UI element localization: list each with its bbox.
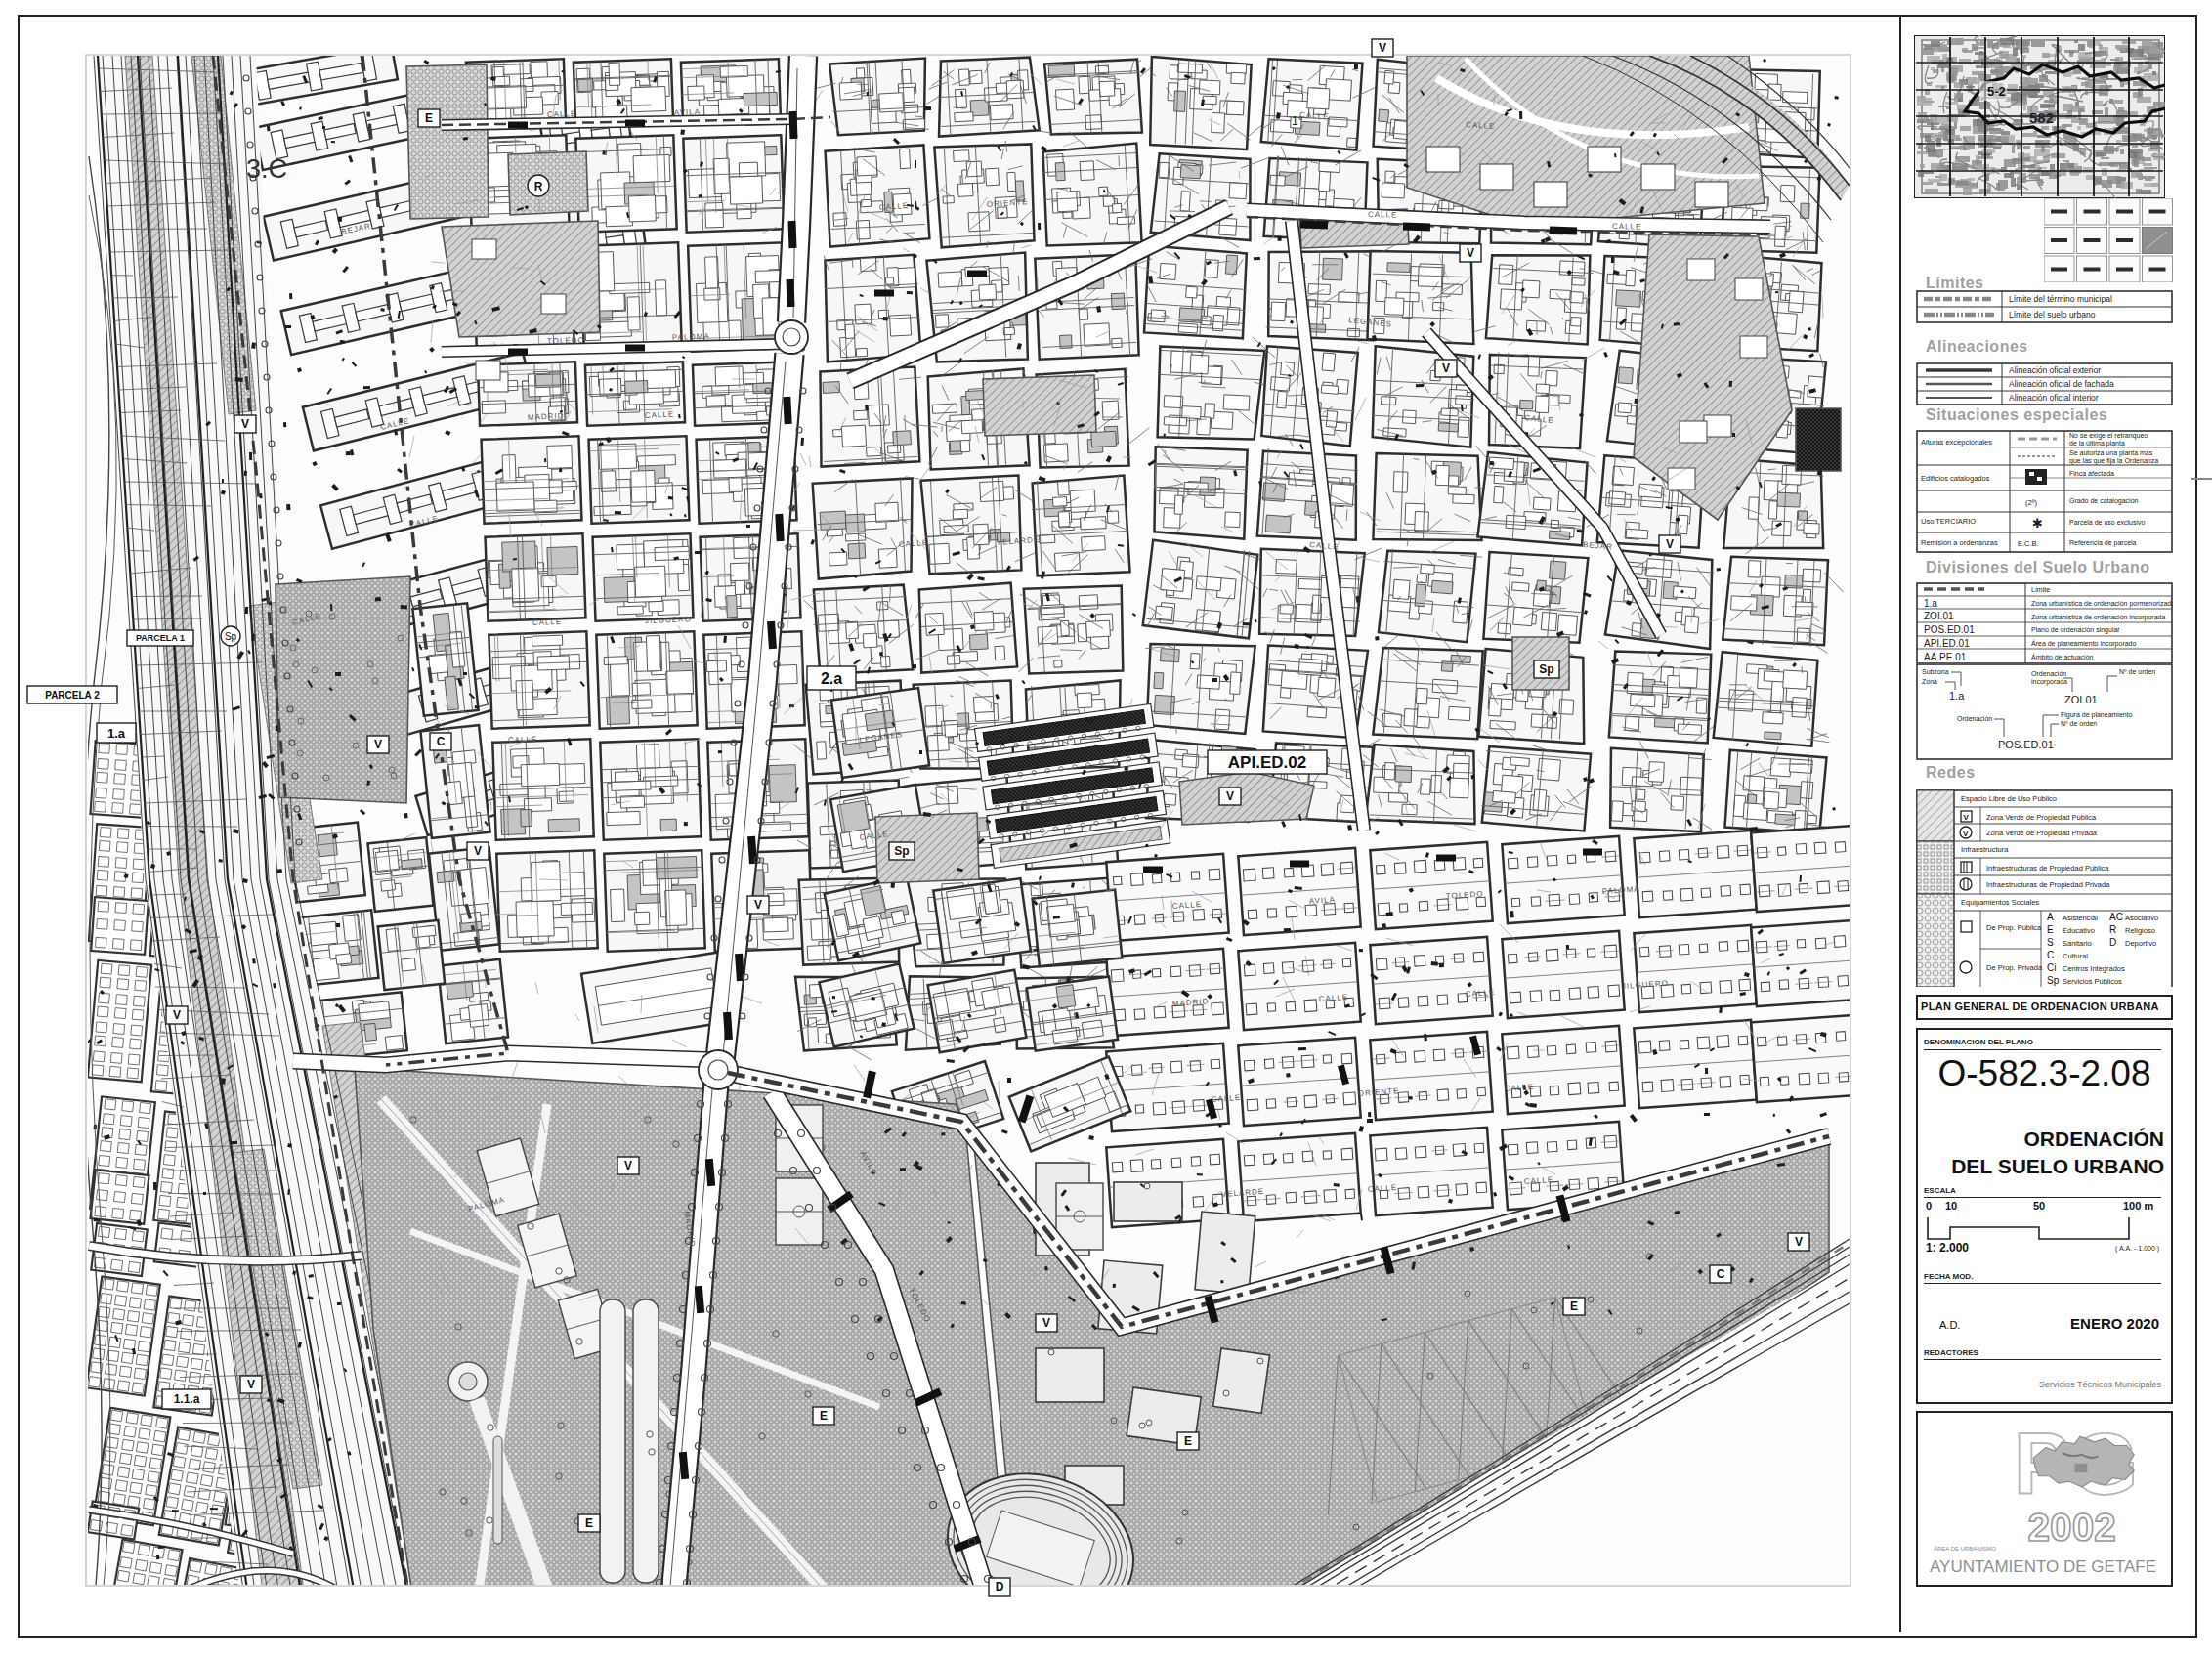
svg-text:POS.ED.01: POS.ED.01 <box>1924 624 1975 635</box>
svg-text:Educativo: Educativo <box>2063 926 2095 935</box>
svg-text:E: E <box>425 111 433 125</box>
svg-text:V: V <box>1226 789 1234 803</box>
svg-text:Ci: Ci <box>2047 962 2056 973</box>
svg-text:Referencia de parcela: Referencia de parcela <box>2069 539 2137 547</box>
svg-text:1.a: 1.a <box>1924 598 1937 609</box>
svg-text:C: C <box>1717 1267 1725 1281</box>
svg-text:V: V <box>1379 41 1386 55</box>
svg-text:De Prop. Privada: De Prop. Privada <box>1986 963 2043 972</box>
svg-text:Cultural: Cultural <box>2063 952 2088 960</box>
svg-text:E: E <box>2047 924 2054 935</box>
svg-text:V: V <box>1795 1235 1803 1249</box>
svg-text:100 m: 100 m <box>2123 1200 2153 1212</box>
svg-text:1.1.a: 1.1.a <box>174 1392 200 1406</box>
svg-text:Límite del suelo urbano: Límite del suelo urbano <box>2009 310 2096 319</box>
svg-text:V: V <box>1964 813 1970 822</box>
svg-text:Límite: Límite <box>2031 586 2050 593</box>
svg-text:( A.A. - 1.000 ): ( A.A. - 1.000 ) <box>2115 1245 2159 1253</box>
svg-text:V: V <box>374 738 382 751</box>
svg-text:V: V <box>1467 246 1474 260</box>
svg-text:V: V <box>1963 830 1969 838</box>
svg-text:ZOI.01: ZOI.01 <box>2064 694 2098 705</box>
svg-text:Se autoriza una planta más: Se autoriza una planta más <box>2069 449 2153 457</box>
svg-text:TOLEDO: TOLEDO <box>547 336 585 346</box>
svg-text:Zona urbanística de ordenación: Zona urbanística de ordenación incorpora… <box>2031 614 2165 621</box>
svg-text:CALLE: CALLE <box>532 618 563 627</box>
svg-text:E.C.B.: E.C.B. <box>2018 539 2039 548</box>
svg-text:Infraestructura: Infraestructura <box>1961 845 2009 854</box>
svg-text:1.a: 1.a <box>107 726 126 741</box>
svg-text:Finca afectada: Finca afectada <box>2069 470 2114 477</box>
svg-text:Ámbito de actuación: Ámbito de actuación <box>2031 653 2094 660</box>
svg-text:Deportivo: Deportivo <box>2125 939 2156 948</box>
svg-text:D: D <box>996 1580 1004 1594</box>
svg-text:POS.ED.01: POS.ED.01 <box>1998 739 2054 750</box>
svg-text:10: 10 <box>1945 1200 1957 1212</box>
svg-text:C: C <box>437 735 446 748</box>
svg-text:Sp: Sp <box>1539 662 1553 676</box>
svg-text:V: V <box>241 417 249 431</box>
svg-text:AC: AC <box>2109 912 2123 922</box>
svg-text:Edificios catalogados: Edificios catalogados <box>1921 474 1990 483</box>
svg-text:de la última planta: de la última planta <box>2069 440 2125 447</box>
svg-text:V: V <box>1666 537 1674 551</box>
svg-text:Infraestructuras de Propiedad: Infraestructuras de Propiedad Privada <box>1986 880 2110 889</box>
svg-text:Zona Verde de Propiedad Públic: Zona Verde de Propiedad Pública <box>1986 813 2097 822</box>
svg-text:Religioso: Religioso <box>2125 926 2155 935</box>
svg-text:Sp: Sp <box>894 844 909 858</box>
svg-text:Grado de catalogación: Grado de catalogación <box>2069 497 2139 505</box>
svg-text:Figura de planeamiento: Figura de planeamiento <box>2061 711 2133 719</box>
svg-text:C: C <box>2047 950 2054 960</box>
svg-text:No se exige el retranqueo: No se exige el retranqueo <box>2069 432 2148 440</box>
svg-text:Alineación oficial exterior: Alineación oficial exterior <box>2009 365 2101 375</box>
svg-text:Uso TERCIARIO: Uso TERCIARIO <box>1921 517 1976 526</box>
svg-text:R: R <box>534 180 543 193</box>
svg-text:CALLE: CALLE <box>645 409 675 420</box>
svg-text:Sp: Sp <box>225 631 237 642</box>
svg-text:CALLE: CALLE <box>1612 222 1642 232</box>
svg-text:Asociativo: Asociativo <box>2125 914 2158 922</box>
svg-text:PARCELA 1: PARCELA 1 <box>136 633 185 643</box>
svg-text:JILGUERO: JILGUERO <box>645 615 692 625</box>
svg-text:2002: 2002 <box>2028 1505 2116 1550</box>
svg-text:CALLE: CALLE <box>508 735 538 745</box>
svg-text:Espacio Libre de Uso Público: Espacio Libre de Uso Público <box>1961 794 2057 803</box>
svg-text:E: E <box>1570 1299 1578 1313</box>
svg-text:Infraestructuras de Propiedad: Infraestructuras de Propiedad Pública <box>1986 864 2109 873</box>
svg-text:E: E <box>1184 1434 1192 1448</box>
svg-text:✱: ✱ <box>2032 516 2043 531</box>
svg-text:que las que fija la Ordenanza: que las que fija la Ordenanza <box>2069 457 2158 465</box>
svg-text:V: V <box>1042 1316 1050 1330</box>
svg-text:Alineación oficial de fachada: Alineación oficial de fachada <box>2009 379 2114 389</box>
svg-text:582: 582 <box>2029 109 2054 126</box>
svg-text:D: D <box>2109 937 2116 948</box>
svg-text:V: V <box>624 1159 632 1172</box>
svg-text:CALLE: CALLE <box>547 109 577 119</box>
svg-text:Remisión a ordenanzas: Remisión a ordenanzas <box>1921 538 1998 547</box>
svg-text:2.a: 2.a <box>821 670 842 687</box>
svg-text:E: E <box>820 1409 828 1423</box>
svg-text:Sanitario: Sanitario <box>2063 939 2092 948</box>
svg-text:Sp: Sp <box>2047 975 2060 986</box>
svg-text:1: 2.000: 1: 2.000 <box>1926 1241 1969 1253</box>
svg-text:Centros Integrados: Centros Integrados <box>2063 964 2125 973</box>
svg-text:API.ED.01: API.ED.01 <box>1924 638 1970 649</box>
svg-text:Plano de ordenación singular: Plano de ordenación singular <box>2031 626 2120 634</box>
svg-text:V: V <box>474 844 482 858</box>
svg-text:3.C: 3.C <box>246 154 287 184</box>
svg-text:Zona urbanística de ordenación: Zona urbanística de ordenación pormenori… <box>2031 600 2173 608</box>
svg-text:(2º): (2º) <box>2025 498 2037 507</box>
svg-text:Zona: Zona <box>1922 678 1937 685</box>
svg-text:V: V <box>754 898 762 912</box>
svg-text:S: S <box>2047 937 2054 948</box>
svg-text:50: 50 <box>2033 1200 2045 1212</box>
svg-text:PALOMA: PALOMA <box>672 332 710 342</box>
svg-text:PARCELA 2: PARCELA 2 <box>45 690 100 701</box>
svg-text:Alturas excepcionales: Alturas excepcionales <box>1921 438 1992 447</box>
svg-text:Asistencial: Asistencial <box>2063 914 2098 922</box>
svg-text:1.a: 1.a <box>1949 690 1965 702</box>
svg-text:Nº de orden: Nº de orden <box>2061 720 2097 727</box>
svg-text:E: E <box>585 1516 593 1530</box>
svg-text:incorporada: incorporada <box>2031 678 2067 686</box>
svg-text:AVILA: AVILA <box>1309 895 1337 906</box>
svg-text:De Prop. Pública: De Prop. Pública <box>1986 923 2042 932</box>
svg-text:5-2: 5-2 <box>1987 84 2006 99</box>
svg-text:API.ED.02: API.ED.02 <box>1228 753 1306 772</box>
svg-text:AVILA: AVILA <box>674 107 701 117</box>
svg-text:0: 0 <box>1926 1200 1932 1212</box>
svg-text:A: A <box>2047 912 2054 922</box>
svg-text:CALLE: CALLE <box>1368 210 1398 220</box>
svg-text:Área de planeamiento incorpora: Área de planeamiento incorporado <box>2031 639 2137 648</box>
svg-text:Ordenación: Ordenación <box>1957 715 1992 722</box>
svg-text:Nº de orden: Nº de orden <box>2119 668 2155 675</box>
svg-text:Equipamientos Sociales: Equipamientos Sociales <box>1961 898 2039 907</box>
svg-text:Parcela de uso exclusivo: Parcela de uso exclusivo <box>2069 519 2146 526</box>
svg-text:AA.PE.01: AA.PE.01 <box>1924 652 1967 662</box>
svg-text:V: V <box>173 1008 181 1022</box>
svg-text:Alineación oficial interior: Alineación oficial interior <box>2009 393 2099 403</box>
svg-text:Servicios Públicos: Servicios Públicos <box>2063 977 2122 986</box>
svg-text:ZOI.01: ZOI.01 <box>1924 611 1954 621</box>
svg-text:V: V <box>247 1378 255 1391</box>
svg-text:Subzona: Subzona <box>1922 668 1949 675</box>
svg-text:Límite del término municipal: Límite del término municipal <box>2009 294 2112 304</box>
svg-text:V: V <box>1442 362 1450 375</box>
svg-text:Zona Verde de Propiedad Privad: Zona Verde de Propiedad Privada <box>1986 829 2098 837</box>
svg-text:Ordenación: Ordenación <box>2031 670 2066 677</box>
svg-text:1°: 1° <box>1292 114 1303 128</box>
svg-text:R: R <box>2109 924 2116 935</box>
